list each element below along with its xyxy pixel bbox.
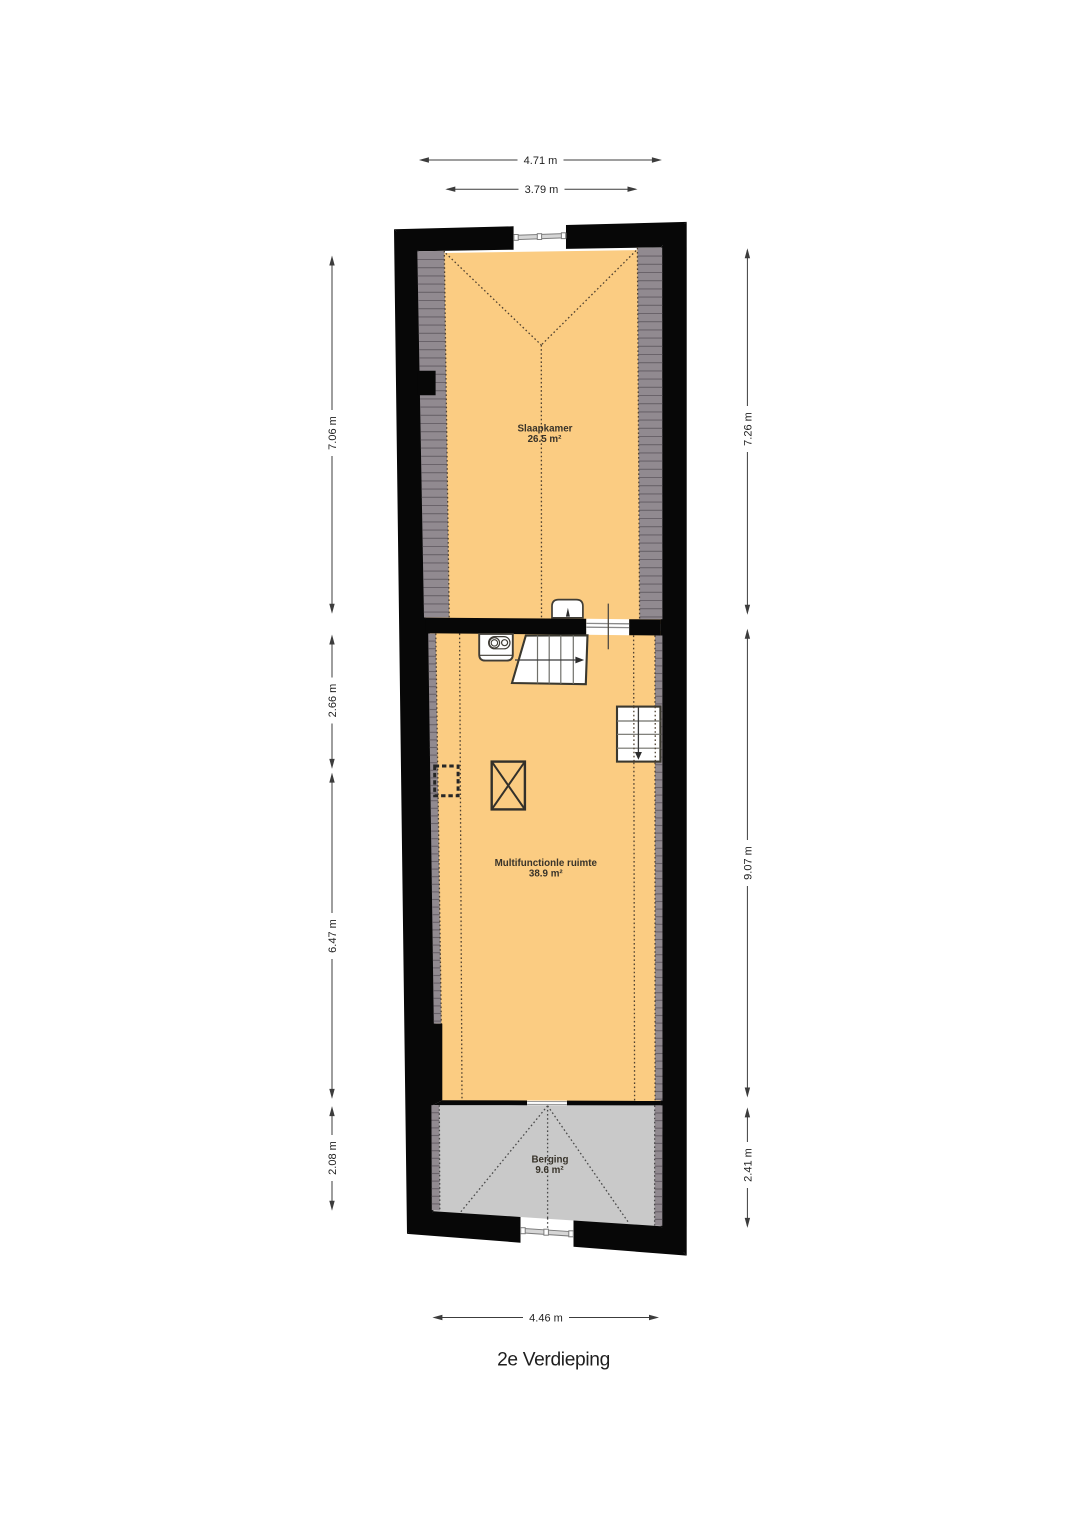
svg-text:38.9 m²: 38.9 m²: [529, 869, 564, 880]
svg-text:9.07 m: 9.07 m: [742, 846, 754, 880]
svg-text:Slaapkamer: Slaapkamer: [517, 424, 572, 435]
svg-text:4.46 m: 4.46 m: [529, 1313, 563, 1325]
svg-text:6.47 m: 6.47 m: [327, 919, 339, 953]
svg-text:Multifunctionle ruimte: Multifunctionle ruimte: [495, 858, 598, 869]
svg-text:7.06 m: 7.06 m: [327, 416, 339, 450]
svg-text:Berging: Berging: [531, 1154, 568, 1165]
svg-text:3.79 m: 3.79 m: [525, 184, 559, 196]
svg-text:2e Verdieping: 2e Verdieping: [497, 1350, 610, 1371]
svg-text:9.6 m²: 9.6 m²: [535, 1165, 564, 1176]
svg-text:2.41 m: 2.41 m: [742, 1148, 754, 1182]
svg-text:4.71 m: 4.71 m: [524, 155, 558, 167]
svg-text:7.26 m: 7.26 m: [742, 412, 754, 446]
svg-text:2.66 m: 2.66 m: [327, 684, 339, 718]
svg-text:26.5 m²: 26.5 m²: [528, 434, 563, 445]
svg-text:2.08 m: 2.08 m: [327, 1141, 339, 1175]
